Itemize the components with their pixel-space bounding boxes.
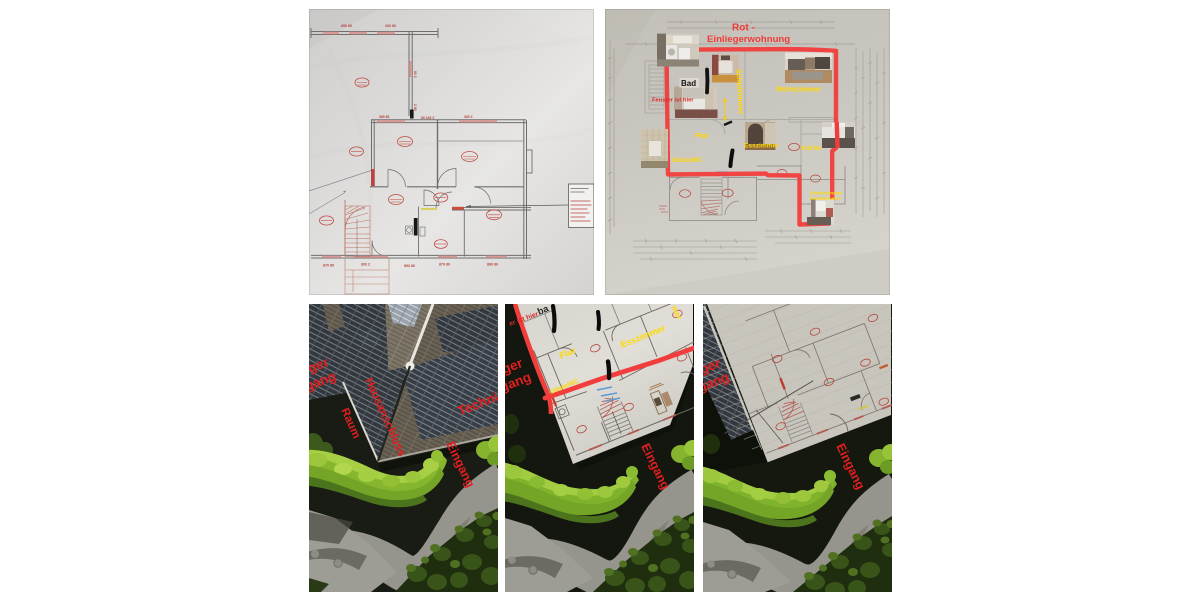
svg-text:80 2: 80 2 — [413, 71, 417, 78]
svg-text:Rot -: Rot - — [732, 23, 755, 34]
svg-text:Bad: Bad — [681, 79, 696, 88]
svg-text:Stube/WC: Stube/WC — [672, 157, 703, 164]
svg-text:303 2: 303 2 — [361, 263, 370, 267]
svg-text:260 80: 260 80 — [385, 24, 396, 28]
svg-text:Fenster ist hier: Fenster ist hier — [652, 98, 694, 104]
svg-text:Kinderzimmer: Kinderzimmer — [810, 191, 842, 197]
svg-text:300 2: 300 2 — [464, 115, 473, 119]
svg-text:Esszimmer: Esszimmer — [744, 143, 779, 150]
svg-text:Wohnzimmer: Wohnzimmer — [776, 85, 821, 94]
svg-text:Musikzimmer: Musikzimmer — [810, 196, 841, 202]
svg-text:893 80: 893 80 — [404, 264, 415, 268]
svg-text:850 80: 850 80 — [341, 24, 352, 28]
svg-text:Einliegerwohnung: Einliegerwohnung — [707, 34, 790, 45]
svg-text:2 80: 2 80 — [413, 104, 417, 111]
svg-text:80 163 2: 80 163 2 — [421, 116, 434, 120]
svg-text:870 80: 870 80 — [439, 263, 450, 267]
svg-text:369 80: 369 80 — [379, 115, 389, 119]
svg-text:870 80: 870 80 — [323, 264, 334, 268]
svg-text:Flur: Flur — [695, 131, 709, 140]
svg-text:880 80: 880 80 — [487, 263, 498, 267]
svg-text:Küche: Küche — [801, 145, 821, 152]
